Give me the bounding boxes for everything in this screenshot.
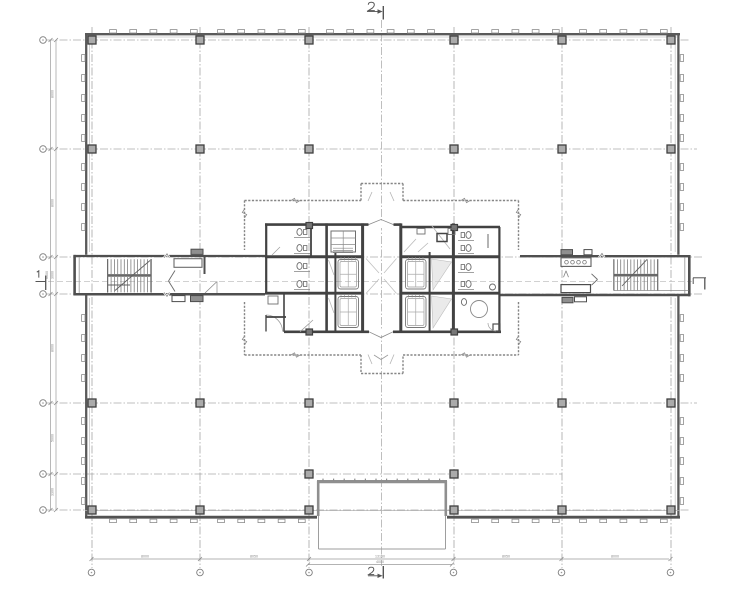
svg-text:8000: 8000 xyxy=(50,90,54,98)
svg-text:5000: 5000 xyxy=(50,434,54,442)
svg-text:8000: 8000 xyxy=(611,555,619,559)
svg-text:4000: 4000 xyxy=(376,560,384,564)
svg-text:8000: 8000 xyxy=(50,199,54,207)
svg-text:13150: 13150 xyxy=(375,555,385,559)
svg-text:8000: 8000 xyxy=(50,344,54,352)
svg-text:8050: 8050 xyxy=(250,555,258,559)
svg-text:8000: 8000 xyxy=(141,555,149,559)
svg-text:3000: 3000 xyxy=(50,271,54,279)
svg-text:8050: 8050 xyxy=(502,555,510,559)
svg-text:3300: 3300 xyxy=(50,488,54,496)
